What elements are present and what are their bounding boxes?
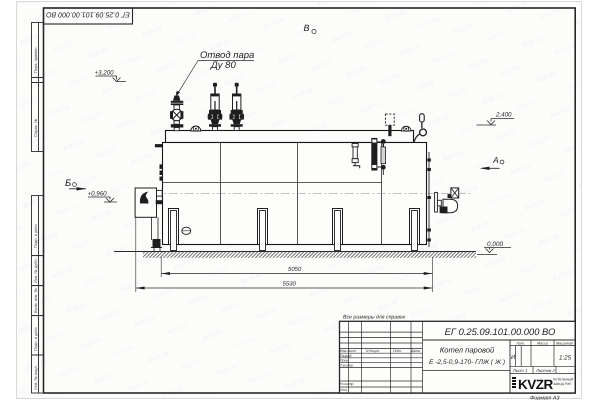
svg-text:0,000: 0,000 xyxy=(487,241,503,248)
svg-text:Инв. № дубл.: Инв. № дубл. xyxy=(33,258,38,283)
svg-text:Подп.: Подп. xyxy=(393,349,402,353)
svg-text:5530: 5530 xyxy=(283,281,297,288)
svg-text:Утв.: Утв. xyxy=(340,388,348,392)
svg-text:1:25: 1:25 xyxy=(559,355,572,362)
svg-text:Разраб.: Разраб. xyxy=(340,354,352,358)
svg-text:Б: Б xyxy=(65,178,71,189)
svg-text:Ду 80: Ду 80 xyxy=(210,60,236,71)
svg-text:В: В xyxy=(304,23,310,33)
svg-text:ЕГ 0.25.09.101.00.000 ВО: ЕГ 0.25.09.101.00.000 ВО xyxy=(445,326,556,337)
svg-text:И: И xyxy=(511,354,516,361)
svg-text:5050: 5050 xyxy=(288,266,302,273)
svg-text:Масса: Масса xyxy=(537,342,548,346)
svg-text:Перв. примен.: Перв. примен. xyxy=(33,46,38,73)
svg-text:А: А xyxy=(492,155,499,165)
svg-text:Инв. № подл.: Инв. № подл. xyxy=(33,365,38,390)
svg-text:Н.контр.: Н.контр. xyxy=(340,382,354,386)
svg-text:Взам. инв. №: Взам. инв. № xyxy=(33,288,38,313)
svg-text:Формат А3: Формат А3 xyxy=(530,395,560,400)
svg-text:N докум.: N докум. xyxy=(366,349,380,353)
svg-text:Листов 2: Листов 2 xyxy=(535,368,555,373)
svg-text:+0,960: +0,960 xyxy=(88,190,108,197)
svg-text:Котел паровой: Котел паровой xyxy=(440,346,495,355)
svg-text:2,400: 2,400 xyxy=(495,112,512,119)
svg-text:ЗАВОД РЭП: ЗАВОД РЭП xyxy=(553,382,572,386)
svg-text:+3,200: +3,200 xyxy=(95,70,115,77)
svg-text:КОТЕЛЬНЫЙ: КОТЕЛЬНЫЙ xyxy=(553,378,574,382)
svg-text:Пров.: Пров. xyxy=(340,359,349,363)
svg-text:Подп. и дата: Подп. и дата xyxy=(33,224,38,248)
svg-text:Дата: Дата xyxy=(410,349,420,353)
svg-text:Е -2,5-0,9-170- ГЛЖ ( Ж ): Е -2,5-0,9-170- ГЛЖ ( Ж ) xyxy=(429,359,505,366)
svg-text:Справ. №: Справ. № xyxy=(33,118,38,137)
svg-text:Т.контр.: Т.контр. xyxy=(340,363,354,367)
svg-text:Лист 1: Лист 1 xyxy=(512,368,527,373)
svg-text:Масштаб: Масштаб xyxy=(556,342,574,346)
svg-text:KVZR: KVZR xyxy=(518,377,554,392)
svg-text:Лит.: Лит. xyxy=(515,342,524,346)
svg-text:Подп. и дата: Подп. и дата xyxy=(33,327,38,351)
svg-text:Все размеры для справок: Все размеры для справок xyxy=(343,315,406,321)
svg-text:ЕГ 0.25.09.101.00.000 ВО: ЕГ 0.25.09.101.00.000 ВО xyxy=(46,11,130,19)
svg-text:Изм.Лист: Изм.Лист xyxy=(340,349,356,353)
